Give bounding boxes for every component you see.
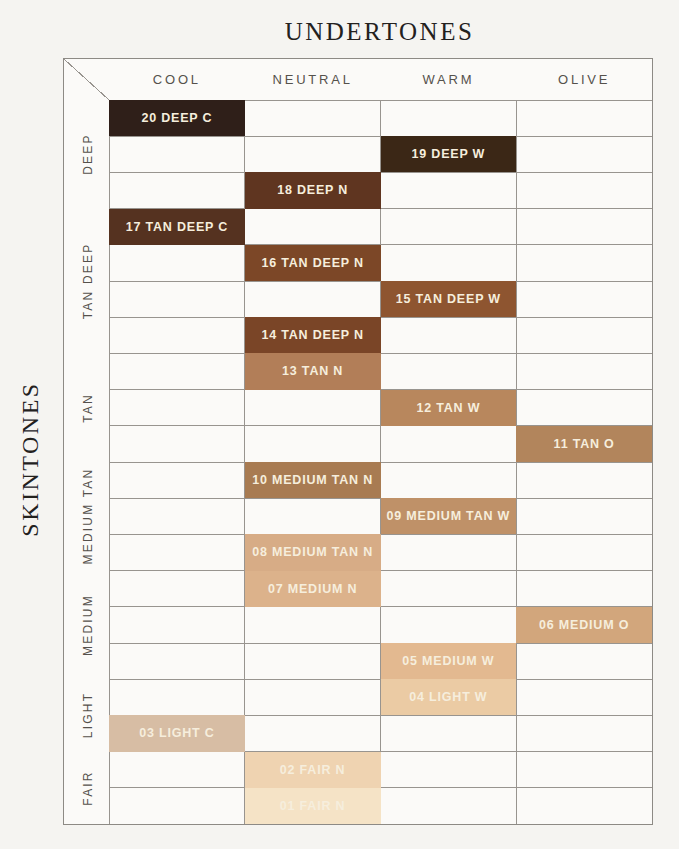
skintone-group-tan: TAN [81,393,95,423]
shade-cell-02-fair-n: 02 FAIR N [245,752,381,788]
skintone-group-tan-deep: TAN DEEP [81,243,95,320]
skintone-group-medium-tan: MEDIUM TAN [81,468,95,565]
undertone-column-olive: OLIVE [516,59,652,100]
undertone-column-neutral: NEUTRAL [245,59,381,100]
shade-cell-14-tan-deep-n: 14 TAN DEEP N [245,317,381,353]
undertone-column-cool: COOL [109,59,245,100]
undertone-column-warm: WARM [381,59,517,100]
shade-cell-15-tan-deep-w: 15 TAN DEEP W [381,281,517,317]
shade-cell-12-tan-w: 12 TAN W [381,390,517,426]
skintone-group-medium: MEDIUM [81,594,95,656]
shade-cell-08-medium-tan-n: 08 MEDIUM TAN N [245,534,381,570]
shade-cell-03-light-c: 03 LIGHT C [109,715,245,751]
shade-cell-04-light-w: 04 LIGHT W [381,679,517,715]
shade-cell-16-tan-deep-n: 16 TAN DEEP N [245,245,381,281]
shade-cell-17-tan-deep-c: 17 TAN DEEP C [109,209,245,245]
shade-cell-06-medium-o: 06 MEDIUM O [516,607,652,643]
shade-cell-05-medium-w: 05 MEDIUM W [381,643,517,679]
shade-cell-20-deep-c: 20 DEEP C [109,100,245,136]
undertones-title: UNDERTONES [108,18,651,46]
skintones-axis-title: SKINTONES [17,381,44,536]
skintone-group-fair: FAIR [81,770,95,805]
shade-cell-07-medium-n: 07 MEDIUM N [245,571,381,607]
shade-cell-19-deep-w: 19 DEEP W [381,136,517,172]
shade-matrix: COOLNEUTRALWARMOLIVE DEEPTAN DEEPTANMEDI… [63,58,653,825]
skintone-group-light: LIGHT [81,692,95,738]
shade-cell-10-medium-tan-n: 10 MEDIUM TAN N [245,462,381,498]
shade-cell-01-fair-n: 01 FAIR N [245,788,381,824]
shade-cell-18-deep-n: 18 DEEP N [245,172,381,208]
skintone-group-deep: DEEP [81,134,95,175]
shade-cell-13-tan-n: 13 TAN N [245,353,381,389]
shade-cell-09-medium-tan-w: 09 MEDIUM TAN W [381,498,517,534]
shade-cell-11-tan-o: 11 TAN O [516,426,652,462]
